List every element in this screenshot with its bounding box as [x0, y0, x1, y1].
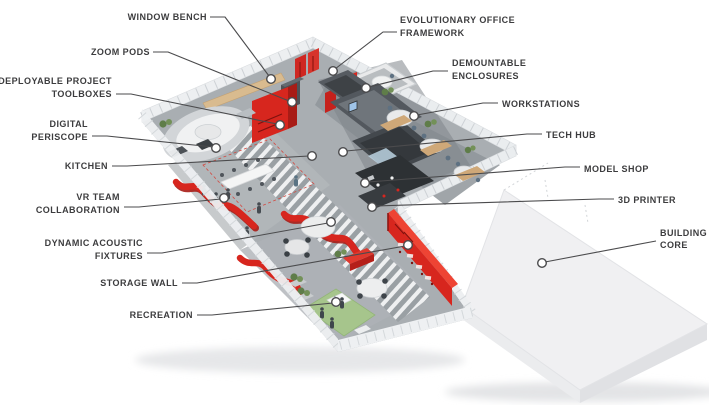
label-demountable-enclosures-line1: DEMOUNTABLE [452, 58, 526, 68]
label-digital-periscope-line2: PERISCOPE [31, 132, 88, 142]
callout-dot-tech-hub [339, 148, 348, 157]
callout-dot-window-bench [267, 75, 276, 84]
callout-dot-evolutionary-office-framework [329, 67, 338, 76]
label-deployable-project-toolboxes-line2: TOOLBOXES [52, 89, 112, 99]
label-dynamic-acoustic-fixtures-line1: DYNAMIC ACOUSTIC [45, 238, 143, 248]
callout-dot-kitchen [308, 152, 317, 161]
callout-dot-digital-periscope [212, 144, 221, 153]
label-evolutionary-office-framework-line1: EVOLUTIONARY OFFICE [400, 15, 515, 25]
label-dynamic-acoustic-fixtures-line2: FIXTURES [95, 251, 143, 261]
label-demountable-enclosures-line2: ENCLOSURES [452, 71, 519, 81]
label-digital-periscope-line1: DIGITAL [50, 119, 89, 129]
callout-dot-deployable-project-toolboxes [276, 121, 285, 130]
label-vr-team-collaboration-line1: VR TEAM [76, 192, 120, 202]
callout-dot-demountable-enclosures [362, 84, 371, 93]
label-evolutionary-office-framework-line2: FRAMEWORK [400, 28, 465, 38]
label-building-core-line2: CORE [660, 240, 688, 250]
callout-dot-3d-printer [368, 203, 377, 212]
callout-dot-dynamic-acoustic-fixtures [327, 218, 336, 227]
floorplan-diagram: WINDOW BENCH ZOOM PODS DEPLOYABLE PROJEC… [0, 0, 709, 405]
label-recreation: RECREATION [130, 310, 193, 320]
label-3d-printer: 3D PRINTER [618, 195, 676, 205]
callout-dot-workstations [410, 112, 419, 121]
callout-dot-storage-wall [404, 241, 413, 250]
callout-dot-building-core [538, 259, 547, 268]
label-tech-hub: TECH HUB [546, 130, 596, 140]
label-storage-wall: STORAGE WALL [100, 278, 178, 288]
callout-dot-zoom-pods [288, 98, 297, 107]
label-workstations: WORKSTATIONS [502, 99, 580, 109]
label-model-shop: MODEL SHOP [584, 164, 649, 174]
label-window-bench: WINDOW BENCH [128, 12, 207, 22]
label-deployable-project-toolboxes-line1: DEPLOYABLE PROJECT [0, 76, 112, 86]
label-building-core-line1: BUILDING [660, 228, 707, 238]
label-zoom-pods: ZOOM PODS [91, 47, 150, 57]
label-vr-team-collaboration-line2: COLLABORATION [36, 205, 120, 215]
callout-dot-model-shop [361, 179, 370, 188]
callout-dot-vr-team-collaboration [220, 194, 229, 203]
callout-dot-recreation [332, 298, 341, 307]
diagram-canvas: WINDOW BENCH ZOOM PODS DEPLOYABLE PROJEC… [0, 0, 709, 405]
label-kitchen: KITCHEN [65, 161, 108, 171]
